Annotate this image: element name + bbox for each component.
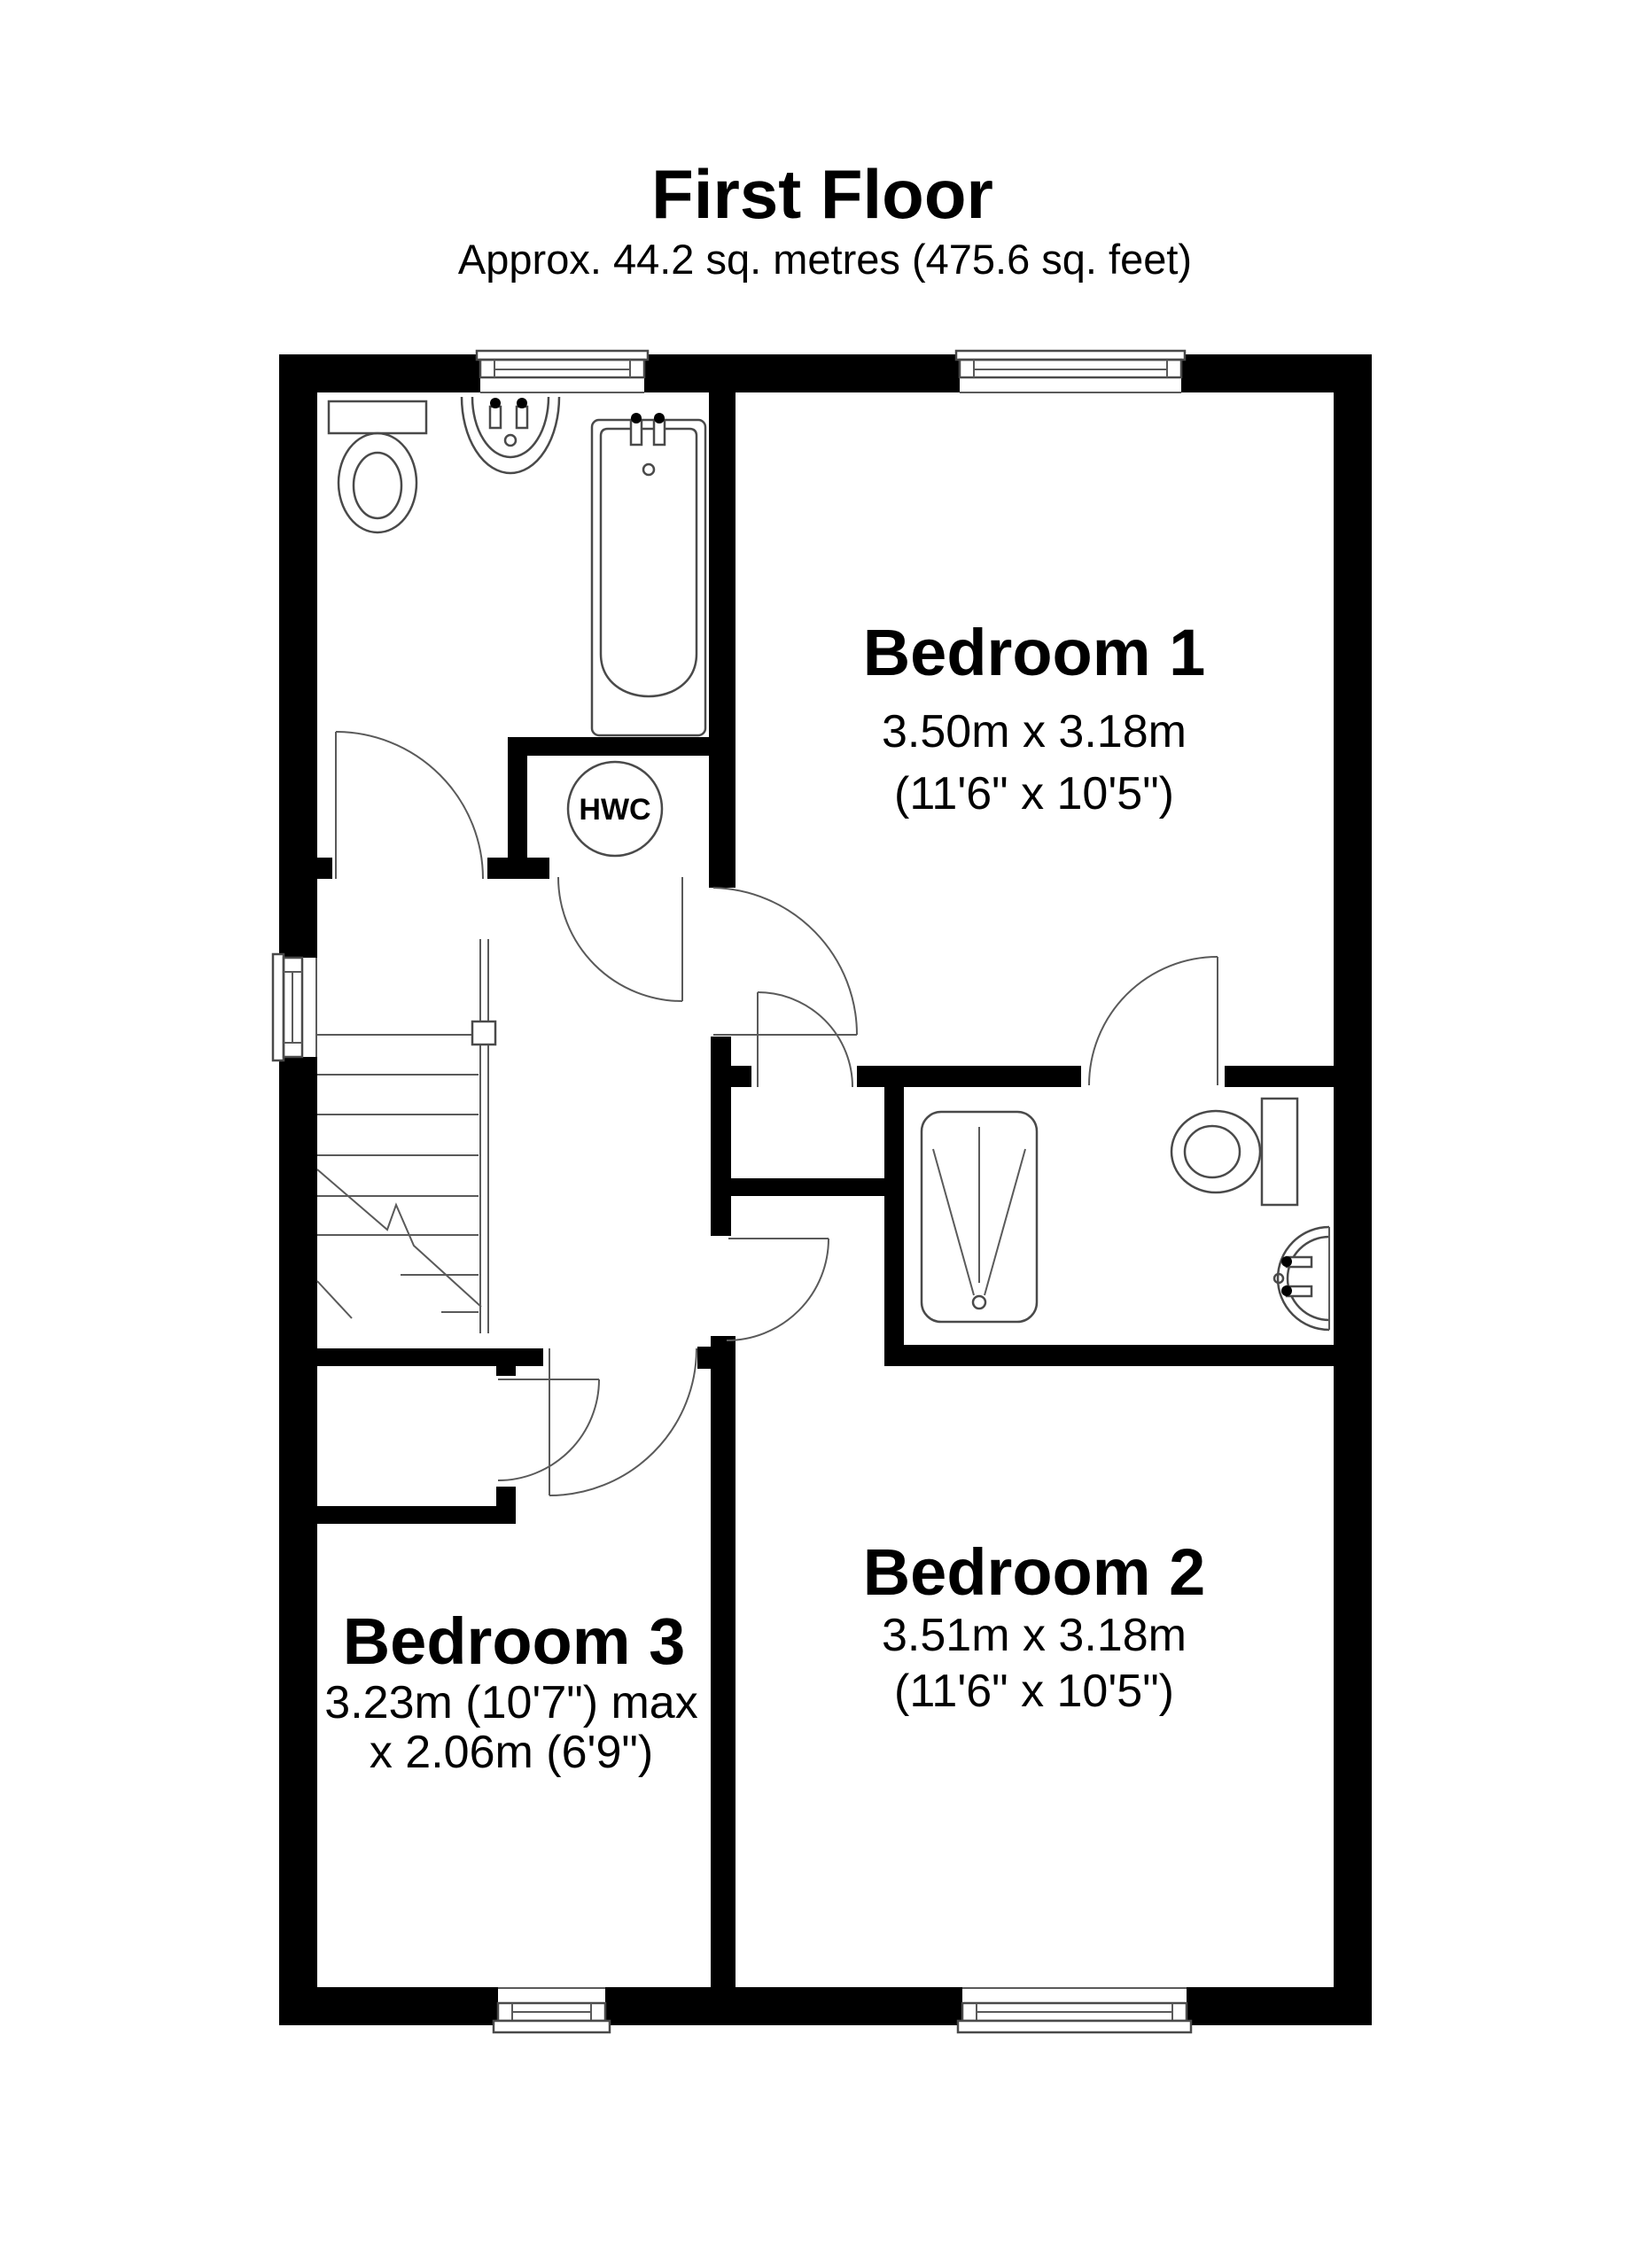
door-ensuite [1089, 957, 1218, 1085]
wall-closet-bottom [731, 1178, 904, 1196]
labels: First Floor Approx. 44.2 sq. metres (475… [324, 155, 1205, 1778]
sink [462, 397, 559, 473]
door-bathroom [336, 732, 483, 879]
wall-stairwell-bottom [317, 1348, 543, 1366]
wall-bedroom2-bedroom3 [711, 1336, 735, 1987]
wall-ensuite-top-right [1225, 1066, 1334, 1087]
outer-wall-top [279, 354, 1372, 392]
wall-bathroom-door-stub-right [487, 858, 549, 879]
door-bedroom1-closet [758, 992, 852, 1087]
wall-ensuite-left [884, 1066, 904, 1366]
hwc-label: HWC [579, 793, 650, 827]
floor-plan-drawing: HWC First Floor Approx. 44.2 s [0, 0, 1650, 2268]
door-bedroom1 [713, 888, 857, 1035]
toilet-cistern [329, 401, 426, 433]
bedroom3-imperial: x 2.06m (6'9") [370, 1727, 653, 1778]
toilet-cistern [1262, 1099, 1297, 1205]
wall-cupboard-bottom [317, 1506, 516, 1524]
bathtub-tap [654, 420, 665, 445]
bedroom1-name: Bedroom 1 [863, 616, 1206, 689]
bathtub-outer [592, 420, 705, 735]
wall-closet-stub [731, 1066, 751, 1087]
wall-bathroom-door-stub-left [317, 858, 332, 879]
door-bedroom3 [549, 1348, 697, 1495]
bathtub [592, 413, 705, 735]
window-bedroom3 [494, 1987, 610, 2032]
page-title: First Floor [651, 155, 993, 233]
stairs [317, 939, 495, 1333]
bedroom3-name: Bedroom 3 [343, 1604, 686, 1678]
bathtub-inner [601, 429, 697, 696]
page-subtitle: Approx. 44.2 sq. metres (475.6 sq. feet) [458, 236, 1192, 283]
shower [922, 1112, 1037, 1322]
window-bedroom1 [956, 351, 1185, 393]
bedroom2-metric: 3.51m x 3.18m [882, 1610, 1187, 1661]
stairs-break-line [317, 1169, 481, 1318]
outer-wall-right [1334, 354, 1372, 2025]
toilet-bowl-inner [354, 453, 401, 518]
window-bathroom [477, 351, 648, 393]
wall-bathroom-bedroom1 [709, 392, 735, 888]
ensuite-fixtures [922, 1099, 1329, 1330]
sink-tap [490, 407, 501, 428]
bathtub-drain [643, 464, 654, 475]
bedroom2-imperial: (11'6" x 10'5") [894, 1666, 1174, 1717]
sink-tap [517, 407, 527, 428]
outer-wall-left [279, 354, 317, 2025]
bedroom3-metric: 3.23m (10'7") max [324, 1677, 697, 1728]
bedroom2-name: Bedroom 2 [863, 1535, 1206, 1609]
bathroom-fixtures [329, 397, 705, 735]
door-hwc-cupboard [558, 877, 682, 1001]
bedroom1-metric: 3.50m x 3.18m [882, 706, 1187, 757]
bathtub-tap [631, 420, 642, 445]
outer-wall-bottom [279, 1987, 1372, 2025]
window-bedroom2 [958, 1987, 1191, 2032]
sink-drain [505, 435, 516, 446]
hot-water-cylinder: HWC [568, 762, 662, 856]
wall-hwc-left [508, 756, 527, 858]
wall-ensuite-bottom [884, 1345, 1334, 1366]
toilet-bowl-inner [1185, 1126, 1240, 1177]
toilet [329, 401, 426, 532]
bedroom1-imperial: (11'6" x 10'5") [894, 768, 1174, 819]
window-landing [273, 954, 317, 1060]
door-bedroom2 [727, 1239, 829, 1340]
floor-plan-page: HWC First Floor Approx. 44.2 s [0, 0, 1650, 2268]
wall-hwc-top [508, 737, 709, 756]
ensuite-toilet [1171, 1099, 1297, 1205]
ensuite-sink [1274, 1227, 1329, 1330]
wall-landing-closet [711, 1037, 731, 1236]
shower-drain [973, 1296, 985, 1309]
wall-cupboard-stub-top [496, 1366, 516, 1376]
stairs-newel-post [472, 1021, 495, 1045]
